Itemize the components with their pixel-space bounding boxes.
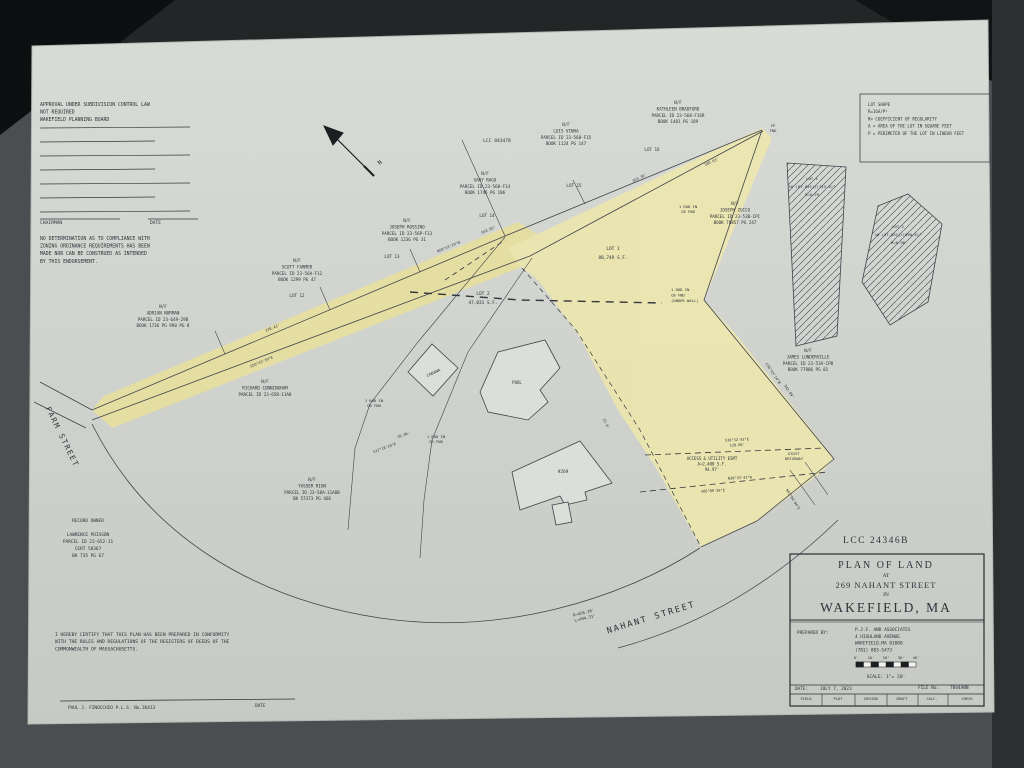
inset-lot1-shape [787,163,846,346]
pool-label: POOL [512,380,522,385]
title-address: 269 NAHANT STREET [836,580,937,590]
lot16-label: LOT 16 [644,147,660,152]
tb-cell-field: FIELD [800,697,811,701]
registry-number: LCC 24346B [843,536,909,546]
lot14-label: LOT 14 [479,213,495,218]
surveyor-signature: PAUL J. FINOCCHIO P.L.S. No.36413 [68,705,156,711]
title-town: WAKEFIELD, MA [820,600,952,615]
tb-scale-tick-10: 10' [868,656,875,660]
tb-file-value: 7844ANN [950,685,969,691]
tb-cell-plot: PLOT [834,697,844,701]
title-in: IN [883,592,889,598]
tb-cell-design: DESIGN [864,697,877,701]
photo-right-shadow [992,0,1024,768]
signature-date-label: DATE [255,703,266,709]
approval-date-label: DATE [150,220,161,226]
scale-bar [856,662,916,667]
tb-scale-tick-0: 0' [854,656,858,660]
house-stub [552,502,572,525]
title-at: AT [883,573,890,579]
house-number-label: #269 [558,469,569,475]
lot12-label: LOT 12 [289,293,305,298]
tb-date-label: DATE: [795,686,808,692]
tb-cell-draft: DRAFT [896,697,908,701]
tb-cell-check: CHECK [961,697,973,701]
chairman-label: CHAIRMAN [40,220,62,226]
lcc-plan-ref: LCC 843478 [483,138,511,144]
survey-plan-photo: APPROVAL UNDER SUBDIVISION CONTROL LAWNO… [0,0,1024,768]
lot15-label: LOT 15 [566,183,582,188]
tb-scale-tick-20: 20' [883,656,890,660]
lot13-label: LOT 13 [384,254,400,259]
tb-date-value: JULY 7, 2023 [820,686,852,692]
title-plan-of-land: PLAN OF LAND [838,560,934,571]
tb-scale-tick-30: 30' [898,656,905,660]
tb-scale-tick-40: 40' [913,656,920,660]
tb-scale-text: SCALE: 1"= 20' [867,674,906,680]
tb-file-label: FILE No. [918,685,939,691]
tb-cell-calc: CALC. [926,697,937,701]
tb-prepared-label: PREPARED BY: [797,630,829,636]
